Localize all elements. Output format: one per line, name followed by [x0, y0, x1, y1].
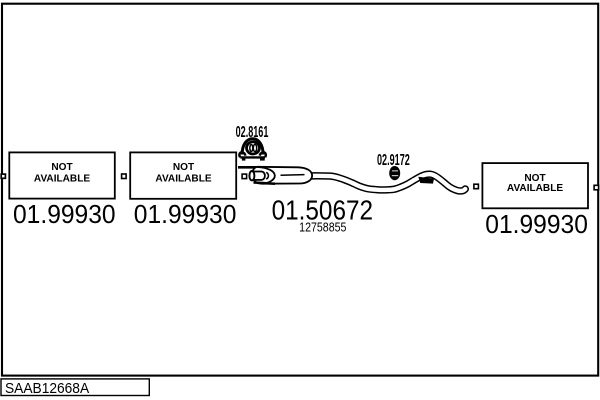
svg-text:NOT: NOT	[51, 162, 73, 173]
svg-text:NOT: NOT	[173, 162, 195, 173]
svg-text:01.99930: 01.99930	[134, 200, 237, 229]
svg-text:SAAB12668A: SAAB12668A	[5, 380, 90, 397]
svg-text:01.99930: 01.99930	[13, 200, 116, 229]
svg-text:01.99930: 01.99930	[485, 210, 588, 239]
svg-text:AVAILABLE: AVAILABLE	[34, 173, 90, 184]
svg-text:12758855: 12758855	[299, 219, 347, 234]
svg-text:AVAILABLE: AVAILABLE	[507, 183, 563, 194]
svg-text:AVAILABLE: AVAILABLE	[155, 173, 211, 184]
